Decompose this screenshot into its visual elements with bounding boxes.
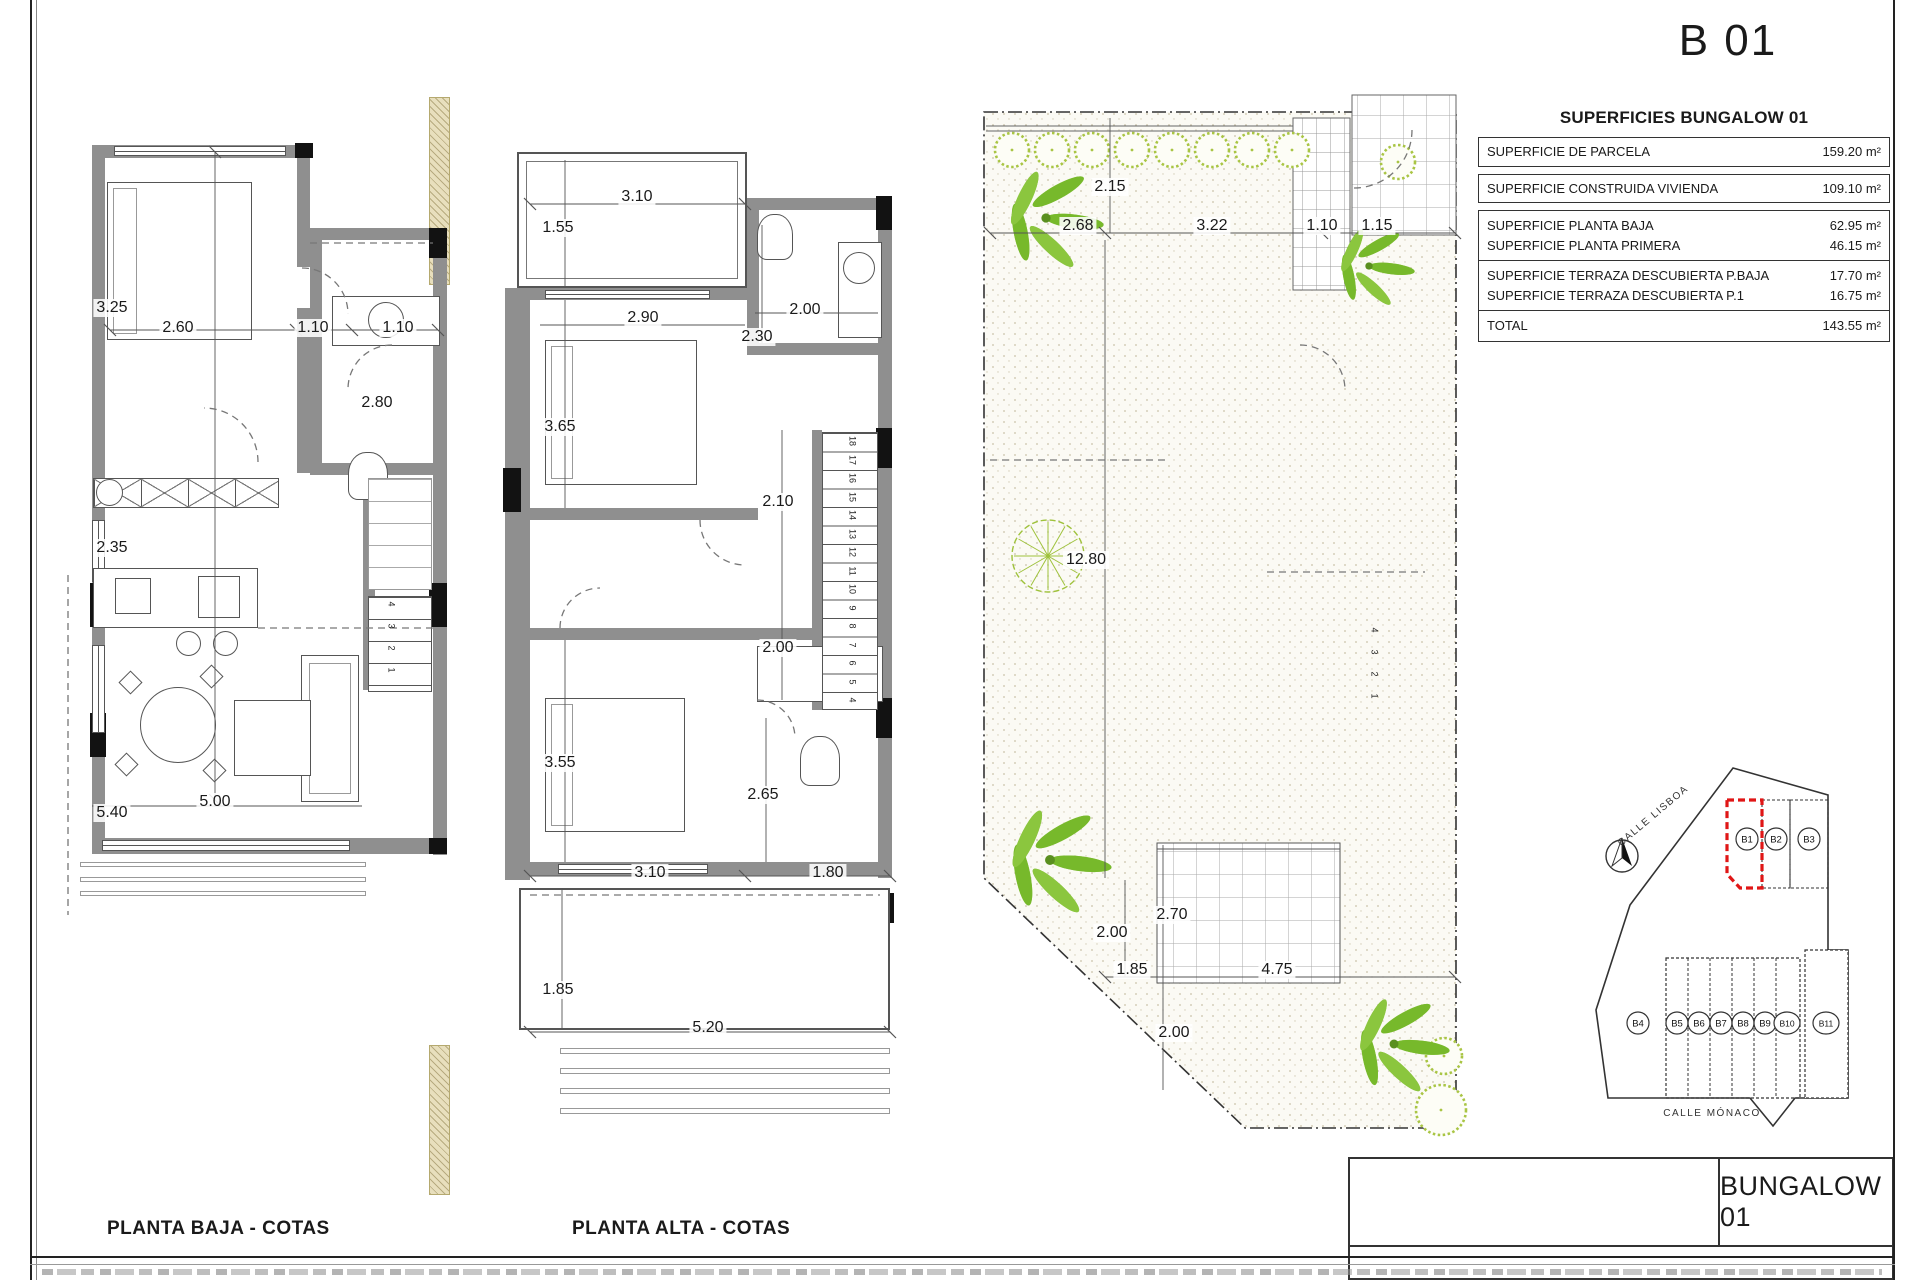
surface-group-box: SUPERFICIE PLANTA BAJA 62.95 m² SUPERFIC… xyxy=(1478,210,1890,342)
stair-number: 2 xyxy=(1370,671,1379,676)
dim-label: 3.22 xyxy=(1193,217,1230,235)
surface-row: SUPERFICIE DE PARCELA 159.20 m² xyxy=(1487,142,1881,162)
surface-group: SUPERFICIE DE PARCELA 159.20 m² xyxy=(1478,137,1890,167)
dim-label: 4.75 xyxy=(1258,961,1295,979)
dim-label: 1.80 xyxy=(809,864,846,882)
surface-row: SUPERFICIE TERRAZA DESCUBIERTA P.BAJA 17… xyxy=(1487,266,1881,286)
surfaces-table: SUPERFICIES BUNGALOW 01 SUPERFICIE DE PA… xyxy=(1478,108,1890,342)
stair-number: 4 xyxy=(848,697,857,702)
surface-group: SUPERFICIE CONSTRUIDA VIVIENDA 109.10 m² xyxy=(1478,174,1890,204)
surface-label: SUPERFICIE TERRAZA DESCUBIERTA P.BAJA xyxy=(1487,266,1769,286)
dim-label: 2.65 xyxy=(744,786,781,804)
plot-label-b8: B8 xyxy=(1737,1019,1749,1030)
dim-label: 5.40 xyxy=(93,804,130,822)
dim-label: 2.35 xyxy=(93,539,130,557)
stair-number: 15 xyxy=(848,491,857,501)
plot-label-b1: B1 xyxy=(1741,835,1753,846)
stair-number: 18 xyxy=(848,436,857,446)
dim-label: 5.20 xyxy=(689,1019,726,1037)
caption-planta-alta: PLANTA ALTA - COTAS xyxy=(572,1218,790,1240)
dim-label: 2.80 xyxy=(358,394,395,412)
stair-number: 13 xyxy=(848,528,857,538)
plot-label-b5: B5 xyxy=(1671,1019,1683,1030)
surfaces-table-title: SUPERFICIES BUNGALOW 01 xyxy=(1478,108,1890,128)
surface-value: 16.75 m² xyxy=(1830,286,1881,306)
plot-label-b3: B3 xyxy=(1803,835,1815,846)
stair-number: 12 xyxy=(848,547,857,557)
dim-label: 1.85 xyxy=(1113,961,1150,979)
surface-label: TOTAL xyxy=(1487,316,1528,336)
plan-sheet: CALLE LISBOA CALLE MÓNACO B1B2B3B4B5B6B7… xyxy=(0,0,1920,1280)
dim-label: 2.70 xyxy=(1153,906,1190,924)
surface-value: 17.70 m² xyxy=(1830,266,1881,286)
dim-label: 3.10 xyxy=(618,188,655,206)
dim-label: 3.10 xyxy=(631,864,668,882)
dim-label: 1.10 xyxy=(1303,217,1340,235)
street-label-monaco: CALLE MÓNACO xyxy=(1663,1106,1760,1119)
stair-number: 17 xyxy=(848,454,857,464)
plot-label-b9: B9 xyxy=(1759,1019,1771,1030)
sheet-code: B 01 xyxy=(1638,16,1818,66)
site-location-map: CALLE LISBOA CALLE MÓNACO B1B2B3B4B5B6B7… xyxy=(1596,768,1848,1126)
surface-label: SUPERFICIE TERRAZA DESCUBIERTA P.1 xyxy=(1487,286,1744,306)
surface-value: 159.20 m² xyxy=(1822,142,1881,162)
surface-row: SUPERFICIE TERRAZA DESCUBIERTA P.1 16.75… xyxy=(1487,286,1881,306)
dim-label: 2.68 xyxy=(1059,217,1096,235)
dim-label: 2.00 xyxy=(1155,1024,1192,1042)
title-block-empty-cell xyxy=(1350,1159,1720,1245)
stair-number: 7 xyxy=(848,642,857,647)
plot-label-b2: B2 xyxy=(1770,835,1782,846)
dim-label: 2.30 xyxy=(738,328,775,346)
stair-number: 6 xyxy=(848,660,857,665)
surface-label: SUPERFICIE PLANTA PRIMERA xyxy=(1487,236,1680,256)
dim-label: 3.55 xyxy=(541,754,578,772)
dim-label: 2.10 xyxy=(759,493,796,511)
title-block-project-label: BUNGALOW 01 xyxy=(1720,1159,1892,1245)
fine-print-strip xyxy=(42,1269,1882,1275)
stair-number: 4 xyxy=(1370,627,1379,632)
stair-number: 3 xyxy=(1370,649,1379,654)
title-block: BUNGALOW 01 xyxy=(1348,1157,1894,1280)
surface-label: SUPERFICIE CONSTRUIDA VIVIENDA xyxy=(1487,179,1718,199)
stair-number: 2 xyxy=(387,645,396,650)
dim-label: 12.80 xyxy=(1063,551,1109,569)
dim-label: 5.00 xyxy=(196,793,233,811)
dim-label: 3.25 xyxy=(93,299,130,317)
dim-label: 3.65 xyxy=(541,418,578,436)
plot-label-b6: B6 xyxy=(1693,1019,1705,1030)
stair-number: 1 xyxy=(387,667,396,672)
stair-number: 9 xyxy=(848,605,857,610)
plot-label-b4: B4 xyxy=(1632,1019,1644,1030)
plot-label-b11: B11 xyxy=(1819,1019,1834,1029)
dim-label: 2.90 xyxy=(624,309,661,327)
stair-number: 11 xyxy=(848,566,857,575)
surface-value: 46.15 m² xyxy=(1830,236,1881,256)
stair-number: 8 xyxy=(848,623,857,628)
dim-label: 1.10 xyxy=(379,319,416,337)
stair-number: 14 xyxy=(848,510,857,520)
surface-value: 143.55 m² xyxy=(1822,316,1881,336)
caption-planta-baja: PLANTA BAJA - COTAS xyxy=(107,1218,330,1240)
stair-number: 16 xyxy=(848,473,857,483)
dim-label: 1.55 xyxy=(539,219,576,237)
stair-number: 1 xyxy=(1370,693,1379,698)
surface-row: SUPERFICIE PLANTA BAJA 62.95 m² xyxy=(1487,216,1881,236)
surface-row: TOTAL 143.55 m² xyxy=(1487,316,1881,336)
stair-number: 10 xyxy=(848,584,857,594)
stair-number: 3 xyxy=(387,623,396,628)
surface-value: 62.95 m² xyxy=(1830,216,1881,236)
plot-label-b7: B7 xyxy=(1715,1019,1727,1030)
surface-row: SUPERFICIE PLANTA PRIMERA 46.15 m² xyxy=(1487,236,1881,256)
stair-number: 4 xyxy=(387,601,396,606)
dim-label: 1.10 xyxy=(294,319,331,337)
dim-label: 2.15 xyxy=(1091,178,1128,196)
dim-label: 2.00 xyxy=(786,301,823,319)
dim-label: 2.00 xyxy=(759,639,796,657)
surface-label: SUPERFICIE DE PARCELA xyxy=(1487,142,1650,162)
dim-label: 2.00 xyxy=(1093,924,1130,942)
dim-label: 1.15 xyxy=(1358,217,1395,235)
surface-row: SUPERFICIE CONSTRUIDA VIVIENDA 109.10 m² xyxy=(1487,179,1881,199)
surface-value: 109.10 m² xyxy=(1822,179,1881,199)
dim-label: 1.85 xyxy=(539,981,576,999)
surface-label: SUPERFICIE PLANTA BAJA xyxy=(1487,216,1654,236)
stair-number: 5 xyxy=(848,679,857,684)
plot-label-b10: B10 xyxy=(1779,1019,1794,1029)
dim-label: 2.60 xyxy=(159,319,196,337)
